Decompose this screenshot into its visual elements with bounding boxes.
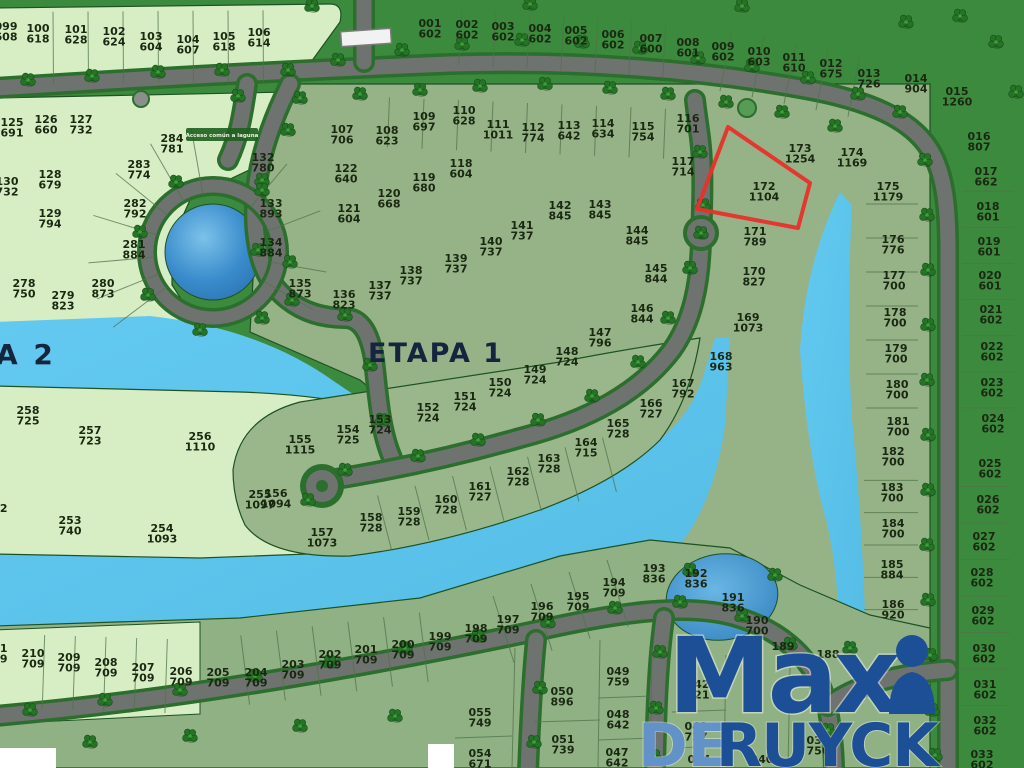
lot-label: 017662 [975,165,998,189]
tree-icon [293,719,308,733]
svg-text:749: 749 [469,717,492,730]
lot-label: 109697 [413,110,436,134]
svg-text:884: 884 [881,569,904,582]
brand-logo: Max DE RUYCK [638,615,941,768]
lot-label: 136823 [333,288,356,312]
svg-text:604: 604 [338,213,361,226]
tree-icon [631,355,646,369]
lot-label: 005602 [565,24,588,48]
svg-text:602: 602 [977,504,1000,517]
svg-text:724: 724 [489,387,512,400]
svg-text:904: 904 [905,83,928,96]
tree-icon [473,79,488,93]
lot-label: 159728 [398,505,421,529]
svg-text:709: 709 [245,677,268,690]
etapa2-label: A 2 [0,338,56,371]
svg-text:1260: 1260 [942,96,973,109]
tree-icon [953,9,968,23]
lot-label: 121604 [338,202,361,226]
lot-label: 019601 [978,235,1001,259]
lot-label: 163728 [538,452,561,476]
svg-text:700: 700 [882,456,905,469]
svg-text:836: 836 [722,602,745,615]
lot-label: 158728 [360,511,383,535]
lot-label: 101628 [65,23,88,47]
lot-label: 154725 [337,423,360,447]
svg-text:1254: 1254 [785,153,816,166]
lot-label: 126660 [35,113,58,137]
svg-text:709: 709 [429,641,452,654]
tree-icon [353,87,368,101]
tree-icon [183,729,198,743]
acceso-banner: Acceso común a laguna [186,128,259,141]
lot-label: 021602 [980,303,1003,327]
tree-icon [301,493,316,507]
svg-text:671: 671 [469,758,492,768]
svg-text:724: 724 [369,424,392,437]
lot-label: 027602 [973,530,996,554]
lot-label: 199709 [429,630,452,654]
svg-text:618: 618 [213,41,236,54]
lot-label: 054671 [469,747,492,768]
svg-text:642: 642 [606,757,629,768]
tree-icon [893,105,908,119]
lot-label: 278750 [13,277,36,301]
svg-text:727: 727 [640,408,663,421]
svg-text:750: 750 [13,288,36,301]
svg-text:725: 725 [337,434,360,447]
svg-text:602: 602 [974,725,997,738]
lot-label: 194709 [603,576,626,600]
lot-label: 182700 [882,445,905,469]
lot-label: 150724 [489,376,512,400]
svg-text:1097: 1097 [245,499,276,512]
tree-icon [533,681,548,695]
lot-label: 257723 [79,424,102,448]
svg-text:602: 602 [565,35,588,48]
lot-label: 132780 [252,151,275,175]
svg-text:737: 737 [480,246,503,259]
tree-icon [21,73,36,87]
lot-label: 210709 [22,647,45,671]
tree-icon [920,538,935,552]
lot-label: 166727 [640,397,663,421]
tree-icon [305,0,320,13]
tree-icon [921,263,936,277]
lot-label: 120668 [378,187,401,211]
tree-icon [193,323,208,337]
tree-icon [1009,85,1024,99]
lot-label: 180700 [886,378,909,402]
svg-text:691: 691 [1,127,24,140]
lot-label: 208709 [95,656,118,680]
svg-text:709: 709 [95,667,118,680]
svg-text:776: 776 [882,244,905,257]
lot-label: 1111011 [483,118,514,142]
lot-label: 049759 [607,665,630,689]
lot-label: 011610 [783,51,806,75]
tree-icon [281,63,296,77]
svg-text:709: 709 [282,669,305,682]
lot-label: 144845 [626,224,649,248]
lot-label: 280873 [92,277,115,301]
lot-label: 105618 [213,30,236,54]
tree-icon [585,389,600,403]
tree-icon [538,77,553,91]
lot-label: 143845 [589,198,612,222]
svg-text:1093: 1093 [147,533,178,546]
tree-icon [338,463,353,477]
lot-label: 281884 [123,238,146,262]
svg-text:792: 792 [124,208,147,221]
svg-text:732: 732 [70,124,93,137]
tree-icon [775,105,790,119]
lot-label: 125691 [1,116,24,140]
svg-text:807: 807 [968,141,991,154]
svg-text:602: 602 [529,33,552,46]
svg-text:700: 700 [887,426,910,439]
svg-text:709: 709 [497,624,520,637]
svg-text:252: 252 [0,502,7,515]
lot-label: 185884 [881,558,904,582]
acceso-label: Acceso común a laguna [186,132,259,139]
lot-label: 024602 [982,412,1005,436]
lot-label: 1751179 [873,180,904,204]
lot-label: 129794 [39,207,62,231]
svg-text:700: 700 [881,492,904,505]
lot-label: 030602 [973,642,996,666]
svg-text:844: 844 [645,273,668,286]
lot-label: 192836 [685,567,708,591]
tree-icon [527,735,542,749]
svg-text:1104: 1104 [749,191,780,204]
lot-label: 202709 [319,648,342,672]
svg-text:601: 601 [977,211,1000,224]
svg-text:709: 709 [22,658,45,671]
logo-ruyck-text: RUYCK [716,711,941,768]
lot-label: 008601 [677,36,700,60]
svg-text:680: 680 [413,182,436,195]
svg-text:724: 724 [417,412,440,425]
svg-text:602: 602 [712,51,735,64]
tree-icon [515,33,530,47]
map-edge-white [0,748,56,768]
svg-text:737: 737 [369,290,392,303]
etapa1-label: ETAPA 1 [368,338,504,369]
tree-icon [719,95,734,109]
lot-label: 004602 [529,22,552,46]
lot-label: 113642 [558,119,581,143]
lot-label: 003602 [492,20,515,44]
svg-text:709: 709 [392,649,415,662]
tree-icon [768,568,783,582]
svg-text:845: 845 [626,235,649,248]
tree-icon [683,261,698,275]
tree-icon [531,413,546,427]
lot-label: 099608 [0,20,17,44]
lot-label: 130732 [0,175,19,199]
lot-label: 013726 [858,67,881,91]
svg-text:601: 601 [979,280,1002,293]
lot-label: 196709 [531,600,554,624]
lot-label: 1731254 [785,142,816,166]
lot-label: 050896 [551,685,574,709]
lot-label: 258725 [17,404,40,428]
lot-label: 108623 [376,124,399,148]
lot-label: 134884 [260,236,283,260]
tree-icon [395,43,410,57]
lot-label: 007600 [640,32,663,56]
svg-text:709: 709 [0,653,7,666]
lot-label: 195709 [567,590,590,614]
svg-text:697: 697 [413,121,436,134]
lot-label: 115754 [632,120,655,144]
lot-label: 193836 [643,562,666,586]
svg-text:844: 844 [631,313,654,326]
lot-label: 177700 [883,269,906,293]
svg-text:728: 728 [538,463,561,476]
lot-label: 127732 [70,113,93,137]
lot-label: 055749 [469,706,492,730]
lot-label: 171789 [744,225,767,249]
svg-text:640: 640 [335,173,358,186]
tree-icon [735,0,750,13]
svg-text:715: 715 [575,447,598,460]
svg-text:607: 607 [177,44,200,57]
svg-text:709: 709 [531,611,554,624]
svg-text:706: 706 [331,134,354,147]
tree-icon [293,91,308,105]
lot-label: 117714 [672,155,695,179]
svg-text:602: 602 [979,468,1002,481]
svg-text:723: 723 [79,435,102,448]
tree-icon [661,311,676,325]
svg-text:774: 774 [522,132,545,145]
lot-label: 141737 [511,219,534,243]
lot-label: 191836 [722,591,745,615]
tree-icon [283,255,298,269]
svg-text:642: 642 [558,130,581,143]
svg-text:725: 725 [17,415,40,428]
svg-text:603: 603 [748,56,771,69]
svg-text:796: 796 [589,337,612,350]
tree-icon [471,433,486,447]
svg-text:789: 789 [744,236,767,249]
svg-text:873: 873 [92,288,115,301]
lot-label: 201709 [355,643,378,667]
tree-icon [920,208,935,222]
svg-text:724: 724 [454,401,477,414]
lot-label: 181700 [887,415,910,439]
lot-label: 110628 [453,104,476,128]
svg-text:774: 774 [128,169,151,182]
tree-icon [608,601,623,615]
svg-text:700: 700 [885,353,908,366]
lot-label: 102624 [103,25,126,49]
svg-text:601: 601 [978,246,1001,259]
svg-text:728: 728 [607,428,630,441]
lot-label: 284781 [161,132,184,156]
tree-icon [151,65,166,79]
lot-label: 023602 [981,376,1004,400]
lot-label: 253740 [59,514,82,538]
svg-text:754: 754 [632,131,655,144]
svg-text:724: 724 [556,356,579,369]
lot-label: 033602 [971,748,994,768]
lot-label: 135873 [289,277,312,301]
svg-text:610: 610 [783,62,806,75]
svg-text:602: 602 [974,689,997,702]
lot-label: 146844 [631,302,654,326]
lot-label: 031602 [974,678,997,702]
svg-text:884: 884 [123,249,146,262]
svg-text:728: 728 [398,516,421,529]
lot-label: 167792 [672,377,695,401]
lot-label: 153724 [369,413,392,437]
lot-label: 012675 [820,57,843,81]
lot-label: 118604 [450,157,473,181]
svg-text:836: 836 [643,573,666,586]
lot-label: 145844 [645,262,668,286]
lot-label: 283774 [128,158,151,182]
lot-label: 165728 [607,417,630,441]
entrance-gate [341,28,392,46]
lot-label: 164715 [575,436,598,460]
tree-icon [413,83,428,97]
svg-text:602: 602 [492,31,515,44]
lot-label: 107706 [331,123,354,147]
svg-text:836: 836 [685,578,708,591]
lot-label: 170827 [743,265,766,289]
tree-icon [411,449,426,463]
tree-icon [331,53,346,67]
tree-icon [921,318,936,332]
lot-label: 200709 [392,638,415,662]
svg-text:893: 893 [260,208,283,221]
lot-label: 028602 [971,566,994,590]
lot-label: 1741169 [837,146,868,170]
svg-text:608: 608 [0,31,17,44]
lot-label: 009602 [712,40,735,64]
lot-label: 006602 [602,28,625,52]
svg-text:602: 602 [456,29,479,42]
svg-text:709: 709 [567,601,590,614]
lot-label: 147796 [589,326,612,350]
svg-text:726: 726 [858,78,881,91]
lot-label: 152724 [417,401,440,425]
svg-text:781: 781 [161,143,184,156]
lot-label: 025602 [979,457,1002,481]
svg-text:740: 740 [59,525,82,538]
lot-label: 106614 [248,26,271,50]
lot-label: 137737 [369,279,392,303]
map-edge-white-2 [428,744,454,768]
lot-label: 104607 [177,33,200,57]
lot-label: 2541093 [147,522,178,546]
svg-text:602: 602 [972,615,995,628]
tree-icon [661,87,676,101]
tree-icon [281,123,296,137]
svg-text:759: 759 [607,676,630,689]
svg-text:668: 668 [378,198,401,211]
svg-text:1110: 1110 [185,441,216,454]
svg-text:602: 602 [973,541,996,554]
svg-text:709: 709 [603,587,626,600]
tree-icon [899,15,914,29]
tree-icon [85,69,100,83]
tree-icon [693,145,708,159]
lot-label: 047642 [606,746,629,768]
lot-label: 139737 [445,252,468,276]
tree-icon [921,428,936,442]
svg-text:602: 602 [982,423,1005,436]
lot-label: 178700 [884,306,907,330]
tree-icon [921,593,936,607]
svg-text:739: 739 [552,744,575,757]
svg-text:780: 780 [252,162,275,175]
svg-text:601: 601 [677,47,700,60]
tree-icon [23,703,38,717]
lot-label: 209709 [58,651,81,675]
svg-text:634: 634 [592,128,615,141]
tree-icon [694,226,709,240]
lot-label: 203709 [282,658,305,682]
svg-text:662: 662 [975,176,998,189]
svg-text:1073: 1073 [307,537,338,550]
lot-label: 184700 [882,517,905,541]
lot-label: 204709 [245,666,268,690]
svg-text:602: 602 [981,351,1004,364]
lot-label: 018601 [977,200,1000,224]
svg-text:827: 827 [743,276,766,289]
svg-text:700: 700 [883,280,906,293]
svg-text:1115: 1115 [285,444,316,457]
lot-label: 114634 [592,117,615,141]
tree-icon [98,693,113,707]
svg-text:737: 737 [511,230,534,243]
lot-label: 119680 [413,171,436,195]
lot-label: 140737 [480,235,503,259]
svg-text:602: 602 [971,759,994,768]
tree-icon [215,63,230,77]
lot-label: 2551097 [245,488,276,512]
svg-text:700: 700 [884,317,907,330]
svg-text:614: 614 [248,37,271,50]
svg-text:1073: 1073 [733,322,764,335]
svg-text:737: 737 [400,275,423,288]
tree-icon [603,81,618,95]
tree-icon [828,119,843,133]
lot-label: 020601 [979,269,1002,293]
svg-text:823: 823 [52,300,75,313]
tree-icon [920,373,935,387]
lot-label: 183700 [881,481,904,505]
svg-text:604: 604 [450,168,473,181]
lot-label: 128679 [39,168,62,192]
lot-label: 205709 [207,666,230,690]
svg-text:728: 728 [435,504,458,517]
lot-label: 198709 [465,622,488,646]
lot-label: 168963 [710,350,733,374]
tree-icon [918,153,933,167]
svg-text:675: 675 [820,68,843,81]
svg-text:728: 728 [507,476,530,489]
tree-icon [133,225,148,239]
lot-label: 022602 [981,340,1004,364]
lot-label: 1691073 [733,311,764,335]
lot-label: 029602 [972,604,995,628]
lot-label: 138737 [400,264,423,288]
